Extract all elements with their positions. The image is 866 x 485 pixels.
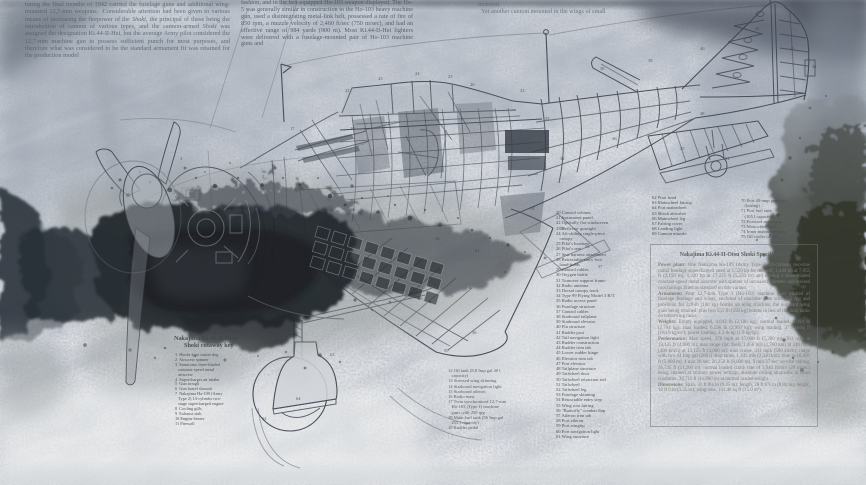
svg-text:45: 45 bbox=[680, 146, 685, 151]
svg-text:38: 38 bbox=[600, 66, 605, 71]
svg-text:23: 23 bbox=[378, 76, 383, 81]
svg-text:48: 48 bbox=[700, 111, 705, 116]
svg-text:24: 24 bbox=[415, 71, 420, 76]
svg-text:40: 40 bbox=[700, 46, 705, 51]
svg-text:20: 20 bbox=[350, 126, 355, 131]
svg-text:34: 34 bbox=[560, 156, 565, 161]
svg-text:61: 61 bbox=[475, 248, 480, 253]
svg-text:43: 43 bbox=[790, 46, 795, 51]
svg-text:21: 21 bbox=[385, 121, 390, 126]
svg-text:17: 17 bbox=[290, 126, 295, 131]
svg-text:26: 26 bbox=[470, 82, 475, 87]
svg-text:39: 39 bbox=[648, 58, 653, 63]
svg-text:18: 18 bbox=[435, 236, 440, 241]
svg-text:64: 64 bbox=[262, 416, 267, 421]
svg-text:32: 32 bbox=[545, 116, 550, 121]
svg-text:42: 42 bbox=[755, 26, 760, 31]
svg-text:36: 36 bbox=[612, 136, 617, 141]
svg-text:25: 25 bbox=[448, 74, 453, 79]
svg-text:22: 22 bbox=[345, 88, 350, 93]
svg-text:44: 44 bbox=[812, 64, 817, 69]
svg-text:36: 36 bbox=[472, 330, 477, 335]
svg-text:64: 64 bbox=[296, 396, 301, 401]
svg-text:59: 59 bbox=[444, 348, 449, 353]
svg-text:63: 63 bbox=[330, 352, 335, 357]
svg-text:54: 54 bbox=[530, 206, 535, 211]
svg-text:51: 51 bbox=[725, 156, 730, 161]
svg-text:33: 33 bbox=[520, 88, 525, 93]
